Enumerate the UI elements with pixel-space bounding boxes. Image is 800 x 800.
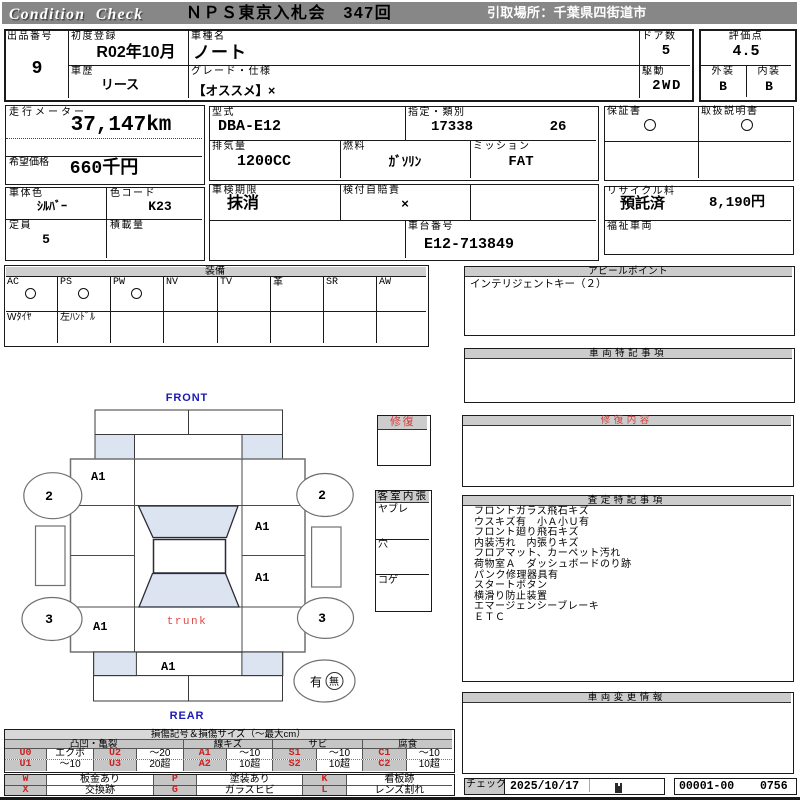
svg-text:2: 2 <box>45 489 53 504</box>
svg-text:3: 3 <box>318 611 326 626</box>
svg-text:A1: A1 <box>255 520 269 534</box>
svg-text:A1: A1 <box>161 660 175 674</box>
svg-text:FRONT: FRONT <box>166 392 208 404</box>
svg-text:trunk: trunk <box>167 616 208 628</box>
svg-text:3: 3 <box>45 612 53 627</box>
svg-text:A1: A1 <box>255 571 269 585</box>
svg-text:無: 無 <box>329 675 339 688</box>
svg-text:有: 有 <box>310 675 322 689</box>
svg-text:A1: A1 <box>91 470 105 484</box>
svg-text:2: 2 <box>318 488 326 503</box>
svg-text:REAR: REAR <box>170 710 205 722</box>
svg-text:A1: A1 <box>93 620 107 634</box>
